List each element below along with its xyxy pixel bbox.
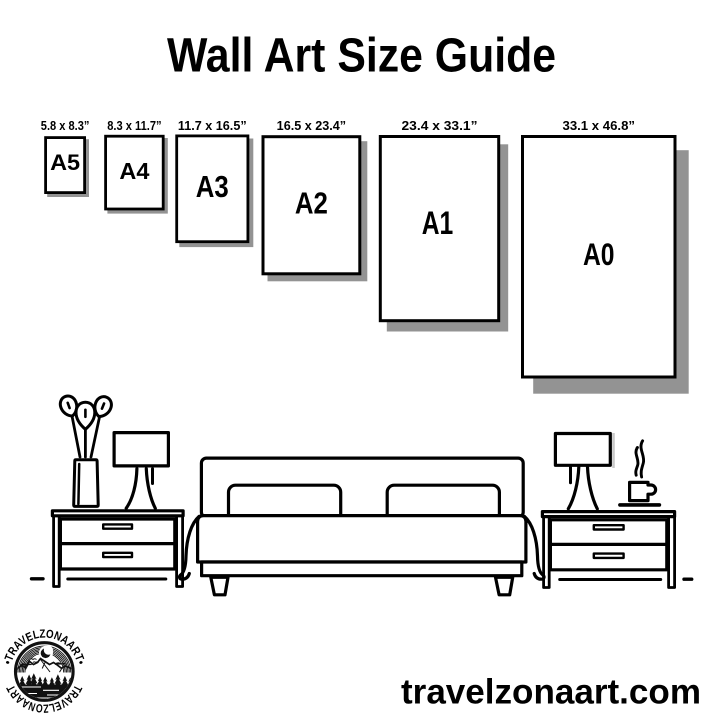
svg-text:A2: A2 bbox=[295, 186, 328, 220]
svg-text:16.5 x 23.4”: 16.5 x 23.4” bbox=[277, 119, 346, 133]
svg-text:A4: A4 bbox=[119, 158, 149, 184]
svg-text:A3: A3 bbox=[196, 170, 229, 204]
svg-text:A0: A0 bbox=[583, 236, 615, 272]
svg-text:A5: A5 bbox=[50, 150, 80, 175]
svg-text:travelzonaart.com: travelzonaart.com bbox=[401, 673, 701, 712]
svg-text:11.7 x 16.5”: 11.7 x 16.5” bbox=[178, 119, 247, 133]
svg-text:5.8 x 8.3”: 5.8 x 8.3” bbox=[41, 119, 90, 133]
svg-text:Wall Art Size Guide: Wall Art Size Guide bbox=[167, 30, 556, 83]
svg-text:A1: A1 bbox=[422, 205, 454, 241]
svg-text:23.4 x 33.1”: 23.4 x 33.1” bbox=[402, 119, 478, 133]
svg-text:8.3 x 11.7”: 8.3 x 11.7” bbox=[107, 119, 161, 133]
svg-text:33.1 x 46.8”: 33.1 x 46.8” bbox=[563, 119, 636, 133]
